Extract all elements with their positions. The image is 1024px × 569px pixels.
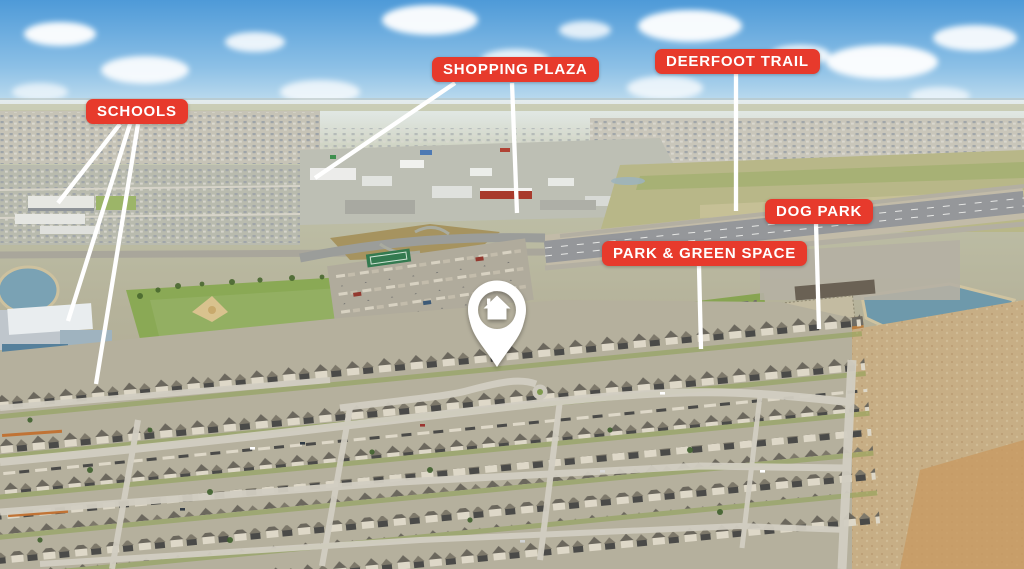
callout-line-dogpark (816, 223, 819, 329)
callout-line-parkgreen (699, 266, 701, 349)
label-park-green-space: PARK & GREEN SPACE (602, 241, 807, 266)
label-deerfoot-trail: DEERFOOT TRAIL (655, 49, 820, 74)
label-schools: SCHOOLS (86, 99, 188, 124)
label-shopping-plaza: SHOPPING PLAZA (432, 57, 599, 82)
label-dog-park: DOG PARK (765, 199, 873, 224)
aerial-map: SCHOOLS SHOPPING PLAZA DEERFOOT TRAIL DO… (0, 0, 1024, 569)
aerial-photo-scene (0, 0, 1024, 569)
bottom-neighbourhood (0, 300, 881, 569)
